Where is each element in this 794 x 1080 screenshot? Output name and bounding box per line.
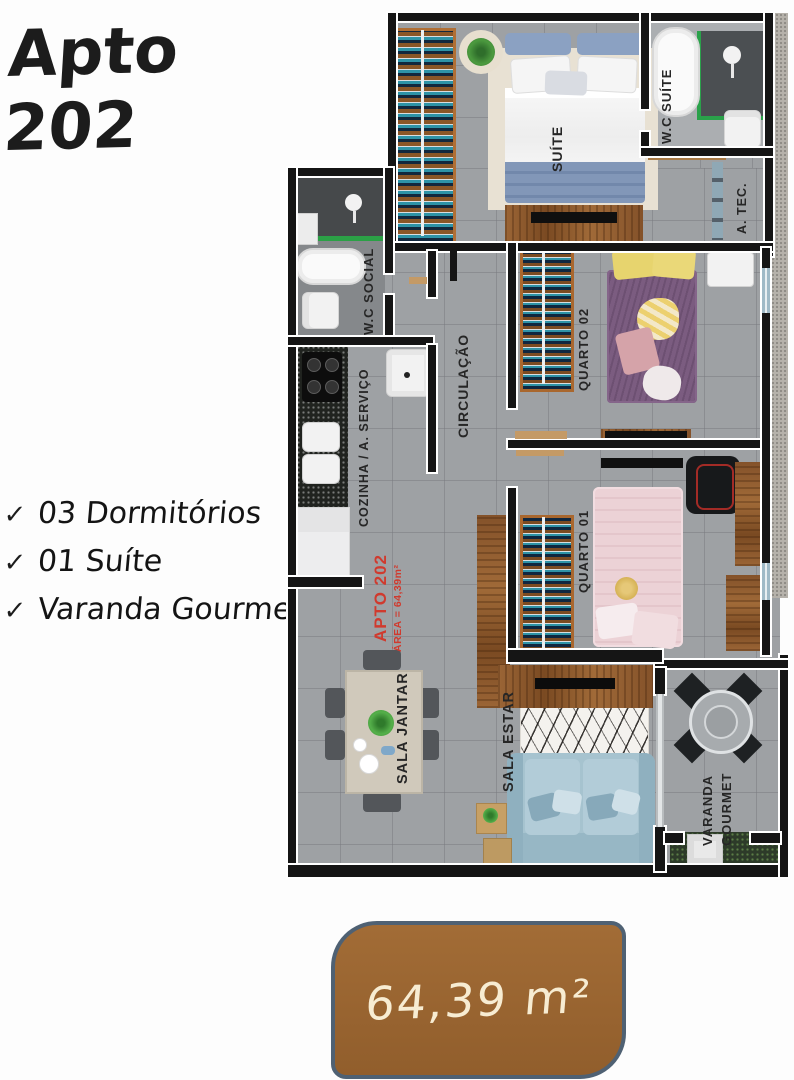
wall xyxy=(388,243,773,251)
sliding-glass-door xyxy=(656,694,664,827)
exterior-texture xyxy=(771,13,788,598)
suite-tv xyxy=(531,212,617,223)
room-label-sala-estar: SALA ESTAR xyxy=(501,706,517,792)
wall xyxy=(641,13,649,109)
quarto02-desk-top xyxy=(605,431,687,440)
dining-chair xyxy=(363,792,401,812)
suite-wardrobe-rail xyxy=(421,30,424,236)
varanda-table-center xyxy=(704,705,738,739)
wall xyxy=(655,668,665,694)
quarto02-bookshelf xyxy=(520,250,574,392)
burner-icon xyxy=(325,358,339,372)
feature-item-suite: ✓ 01 Suíte xyxy=(2,544,285,579)
gaming-chair xyxy=(686,456,740,514)
feature-label: 03 Dormitórios xyxy=(36,496,262,531)
quarto02-bookshelf-rail xyxy=(542,252,545,384)
wall xyxy=(508,650,662,662)
suite-bed xyxy=(505,33,645,203)
suite-headboard-pillow xyxy=(577,33,645,55)
quarto02-pillow-yellow xyxy=(652,246,696,280)
quarto02-nightstand xyxy=(707,252,754,287)
room-label-sala-jantar: SALA JANTAR xyxy=(395,676,411,784)
dining-chair xyxy=(363,650,401,670)
wall xyxy=(388,13,773,21)
burner-icon xyxy=(307,380,321,394)
check-icon: ✓ xyxy=(3,595,40,626)
quarto01-gold-item xyxy=(615,577,638,600)
suite-duvet xyxy=(505,88,645,170)
feature-label: 01 Suíte xyxy=(36,544,163,579)
door-leaf-quarto01 xyxy=(516,450,564,456)
wall xyxy=(428,345,436,472)
room-label-wc-suite: W.C SUÍTE xyxy=(659,54,674,144)
check-icon: ✓ xyxy=(3,547,40,578)
quarto01-bookshelf xyxy=(520,515,574,659)
page-title: Apto 202 xyxy=(2,10,321,166)
door-leaf-wc-social xyxy=(409,277,427,284)
page: Apto 202 ✓ 03 Dormitórios ✓ 01 Suíte ✓ V… xyxy=(0,0,794,1080)
a-tec-door-slats xyxy=(712,162,723,240)
tank-drain xyxy=(404,372,410,378)
room-label-cozinha: COZINHA / A. SERVIÇO xyxy=(357,355,371,527)
plant-icon xyxy=(467,38,495,66)
sofa-pillow xyxy=(551,789,582,815)
quarto01-wardrobe xyxy=(726,575,762,651)
wall xyxy=(641,148,773,156)
suite-headboard-pillow xyxy=(505,33,571,55)
kitchen-sink xyxy=(302,422,340,452)
room-label-circulacao: CIRCULAÇÃO xyxy=(455,343,471,438)
wall xyxy=(508,488,516,650)
feature-label: Varanda Gourmet xyxy=(36,592,304,627)
dining-chair xyxy=(325,730,345,760)
sofa xyxy=(507,753,655,865)
plant-icon xyxy=(483,808,498,823)
check-icon: ✓ xyxy=(3,499,40,530)
side-table xyxy=(483,838,512,866)
plant-icon xyxy=(368,710,394,736)
window-quarto02 xyxy=(762,268,770,313)
area-badge-text: 64,39 m² xyxy=(363,969,594,1031)
quarto01-bed xyxy=(593,487,683,655)
wall xyxy=(288,577,362,587)
suite-dresser xyxy=(505,205,643,243)
wall xyxy=(765,13,773,256)
suite-pillow-accent xyxy=(545,70,588,95)
feature-item-dormitorios: ✓ 03 Dormitórios xyxy=(2,496,285,531)
wall xyxy=(508,243,516,408)
room-label-suite: SUÍTE xyxy=(549,102,565,172)
table-plate xyxy=(353,738,367,752)
wc-social-toilet xyxy=(302,292,339,329)
shower-arm xyxy=(731,64,734,78)
shower-head-icon xyxy=(723,46,741,64)
door-leaf-suite xyxy=(450,251,457,281)
sofa-back xyxy=(523,833,639,865)
area-badge: 64,39 m² xyxy=(331,921,626,1079)
wall xyxy=(665,833,683,843)
room-label-a-tec: A. TEC. xyxy=(735,172,749,234)
wall xyxy=(508,440,762,448)
suite-wardrobe xyxy=(395,28,456,244)
shower-arm xyxy=(353,211,356,223)
table-decor xyxy=(381,746,395,755)
kitchen-sink xyxy=(302,454,340,484)
feature-item-varanda: ✓ Varanda Gourmet xyxy=(2,592,285,627)
wall xyxy=(288,865,788,877)
wall xyxy=(655,827,665,871)
table-plate xyxy=(359,754,379,774)
room-label-quarto02: QUARTO 02 xyxy=(576,303,591,391)
wc-social-bathtub xyxy=(296,248,366,285)
wc-suite-toilet xyxy=(724,110,761,148)
shower-head-icon xyxy=(345,194,362,211)
floor-plan: SUÍTE W.C SUÍTE A. TEC. W.C SOCIAL xyxy=(283,10,793,880)
quarto01-shelf xyxy=(601,458,683,468)
window-quarto01 xyxy=(762,563,770,600)
wall xyxy=(655,660,788,668)
unit-label-line1: APTO 202 xyxy=(371,562,391,642)
quarto01-pillow xyxy=(631,610,679,649)
quarto02-bed xyxy=(607,248,697,403)
quarto01-desk xyxy=(735,462,763,566)
wc-social-vanity xyxy=(296,213,318,245)
wall xyxy=(428,251,436,297)
burner-icon xyxy=(307,358,321,372)
wall xyxy=(385,168,393,273)
quarto01-bookshelf-rail xyxy=(542,517,545,651)
room-label-varanda: VARANDA GOURMET xyxy=(698,752,738,846)
wall xyxy=(288,168,393,176)
wall xyxy=(288,168,296,877)
room-label-wc-social: W.C SOCIAL xyxy=(361,243,376,335)
unit-label-line2: ÁREA = 64,39m² xyxy=(392,568,404,652)
gaming-chair-trim xyxy=(696,464,734,510)
feature-list: ✓ 03 Dormitórios ✓ 01 Suíte ✓ Varanda Go… xyxy=(4,496,284,640)
burner-icon xyxy=(325,380,339,394)
wall xyxy=(751,833,780,843)
room-label-quarto01: QUARTO 01 xyxy=(576,505,591,593)
door-leaf-quarto02 xyxy=(515,431,567,439)
kitchen-fridge xyxy=(296,507,350,579)
tv xyxy=(535,678,615,689)
suite-blanket xyxy=(505,162,645,203)
wall xyxy=(288,337,433,345)
sofa-arm-right xyxy=(639,753,655,865)
wall xyxy=(780,655,788,877)
dining-chair xyxy=(325,688,345,718)
